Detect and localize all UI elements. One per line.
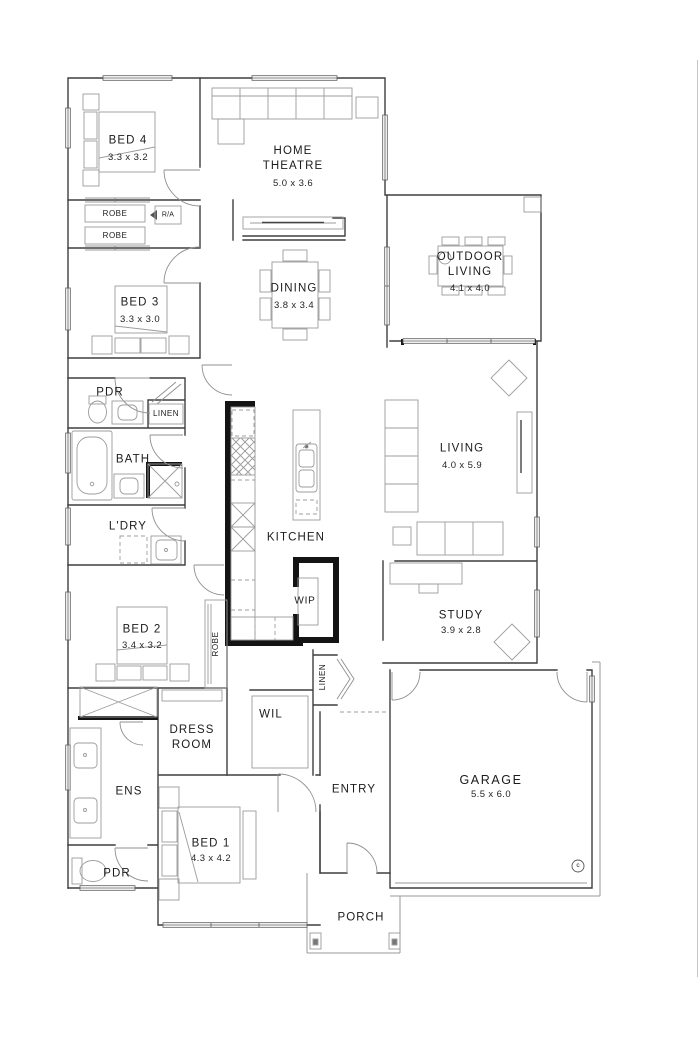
- room-dims-bed2: 3.4 x 3.2: [122, 640, 162, 652]
- room-label-pdr-top: PDR: [96, 386, 124, 401]
- room-label-ldry: L'DRY: [109, 520, 147, 535]
- room-label-ens: ENS: [116, 785, 143, 800]
- room-label-dress-room: DRESS ROOM: [159, 723, 225, 753]
- room-label-wip: WIP: [294, 595, 315, 608]
- room-dims-dining: 3.8 x 3.4: [274, 300, 314, 312]
- eaves-layer: [307, 662, 600, 953]
- furniture-layer: [70, 88, 584, 949]
- room-label-kitchen: KITCHEN: [267, 531, 325, 546]
- closet-label-linen-hall: LINEN: [153, 409, 179, 419]
- room-dims-living: 4.0 x 5.9: [442, 460, 482, 472]
- room-label-wil: WIL: [259, 708, 283, 723]
- room-label-pdr-bottom: PDR: [103, 867, 131, 882]
- closet-label-return-air: R/A: [162, 210, 174, 219]
- column-marker: c: [576, 862, 579, 870]
- room-dims-bed4: 3.3 x 3.2: [108, 152, 148, 164]
- room-dims-garage: 5.5 x 6.0: [471, 789, 511, 801]
- room-label-study: STUDY: [439, 609, 483, 624]
- room-dims-bed1: 4.3 x 4.2: [191, 853, 231, 865]
- closet-label-robe-b: ROBE: [103, 231, 128, 241]
- room-dims-study: 3.9 x 2.8: [441, 625, 481, 637]
- room-dims-home-theatre: 5.0 x 3.6: [273, 178, 313, 190]
- room-label-bath: BATH: [116, 453, 150, 468]
- windows-layer: [66, 76, 595, 928]
- room-label-garage: GARAGE: [459, 772, 522, 788]
- room-label-entry: ENTRY: [332, 783, 376, 798]
- floor-plan-drawing: [0, 0, 700, 1045]
- room-label-porch: PORCH: [337, 911, 384, 926]
- closet-label-robe-a: ROBE: [103, 209, 128, 219]
- room-label-bed1: BED 1: [192, 837, 231, 852]
- room-label-dining: DINING: [271, 282, 318, 297]
- room-label-home-theatre: HOME THEATRE: [255, 144, 331, 174]
- room-label-bed4: BED 4: [109, 134, 148, 149]
- return-air-arrow-icon: [150, 210, 157, 220]
- room-label-living: LIVING: [440, 442, 484, 457]
- closet-label-linen-entry: LINEN: [318, 664, 328, 691]
- floor-plan: BED 4 3.3 x 3.2 HOME THEATRE 5.0 x 3.6 R…: [0, 0, 700, 1045]
- room-label-bed3: BED 3: [121, 296, 160, 311]
- room-dims-outdoor-living: 4.1 x 4.0: [450, 283, 490, 295]
- walls-layer: [68, 78, 592, 925]
- room-label-bed2: BED 2: [123, 623, 162, 638]
- closet-label-robe-bed2: ROBE: [211, 631, 221, 656]
- room-dims-bed3: 3.3 x 3.0: [120, 314, 160, 326]
- room-label-outdoor-living: OUTDOOR LIVING: [426, 250, 514, 280]
